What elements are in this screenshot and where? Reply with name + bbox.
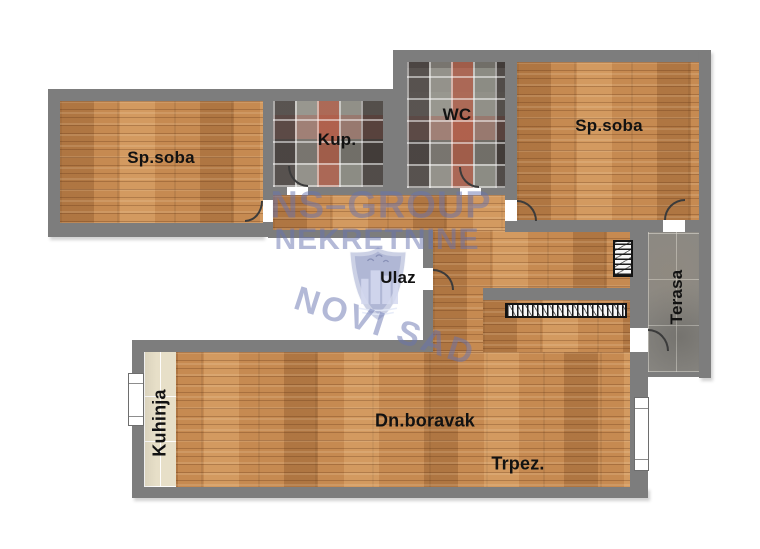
wall-segment bbox=[48, 223, 263, 237]
watermark-agency-sub: NEKRETNINE bbox=[274, 223, 479, 257]
room-label-living-room: Dn.boravak bbox=[375, 411, 475, 432]
window-frame-line bbox=[635, 408, 648, 409]
wardrobe-hatch-horizontal bbox=[505, 303, 627, 318]
room-label-entrance: Ulaz bbox=[380, 268, 416, 288]
window-frame-line bbox=[129, 416, 143, 417]
wall-segment bbox=[48, 89, 395, 101]
door-opening-bedroom-right bbox=[505, 200, 517, 221]
wall-segment bbox=[393, 50, 711, 62]
room-label-bathroom: Kup. bbox=[318, 130, 357, 150]
room-label-terrace: Terasa bbox=[667, 270, 687, 325]
terrace-edge-wall bbox=[647, 372, 711, 377]
kitchen-window bbox=[128, 373, 144, 426]
room-label-bedroom-right: Sp.soba bbox=[575, 116, 643, 136]
room-label-dining: Trpez. bbox=[491, 454, 544, 475]
wall-segment bbox=[383, 89, 407, 195]
wall-segment bbox=[48, 89, 60, 237]
wall-segment bbox=[483, 288, 648, 300]
door-opening-bedroom-terrace bbox=[663, 220, 685, 232]
wall-segment bbox=[699, 50, 711, 378]
wardrobe-hatch-vertical bbox=[613, 240, 633, 277]
room-label-wc: WC bbox=[443, 105, 472, 125]
floor-plan: NS–GROUP NEKRETNINE NOVI SAD Sp.soba Kup… bbox=[0, 0, 760, 549]
living-room-window bbox=[634, 397, 649, 471]
wall-segment bbox=[132, 487, 648, 498]
window-frame-line bbox=[129, 383, 143, 384]
room-label-bedroom-left: Sp.soba bbox=[127, 148, 195, 168]
door-opening-living-terrace bbox=[630, 328, 648, 352]
bedroom-right-floor bbox=[517, 62, 699, 220]
door-opening-entrance bbox=[423, 268, 433, 290]
wc-floor bbox=[407, 62, 505, 188]
window-frame-line bbox=[635, 459, 648, 460]
wall-segment bbox=[393, 62, 407, 89]
room-label-kitchen: Kuhinja bbox=[150, 389, 171, 456]
watermark-agency-name: NS–GROUP bbox=[270, 185, 491, 228]
